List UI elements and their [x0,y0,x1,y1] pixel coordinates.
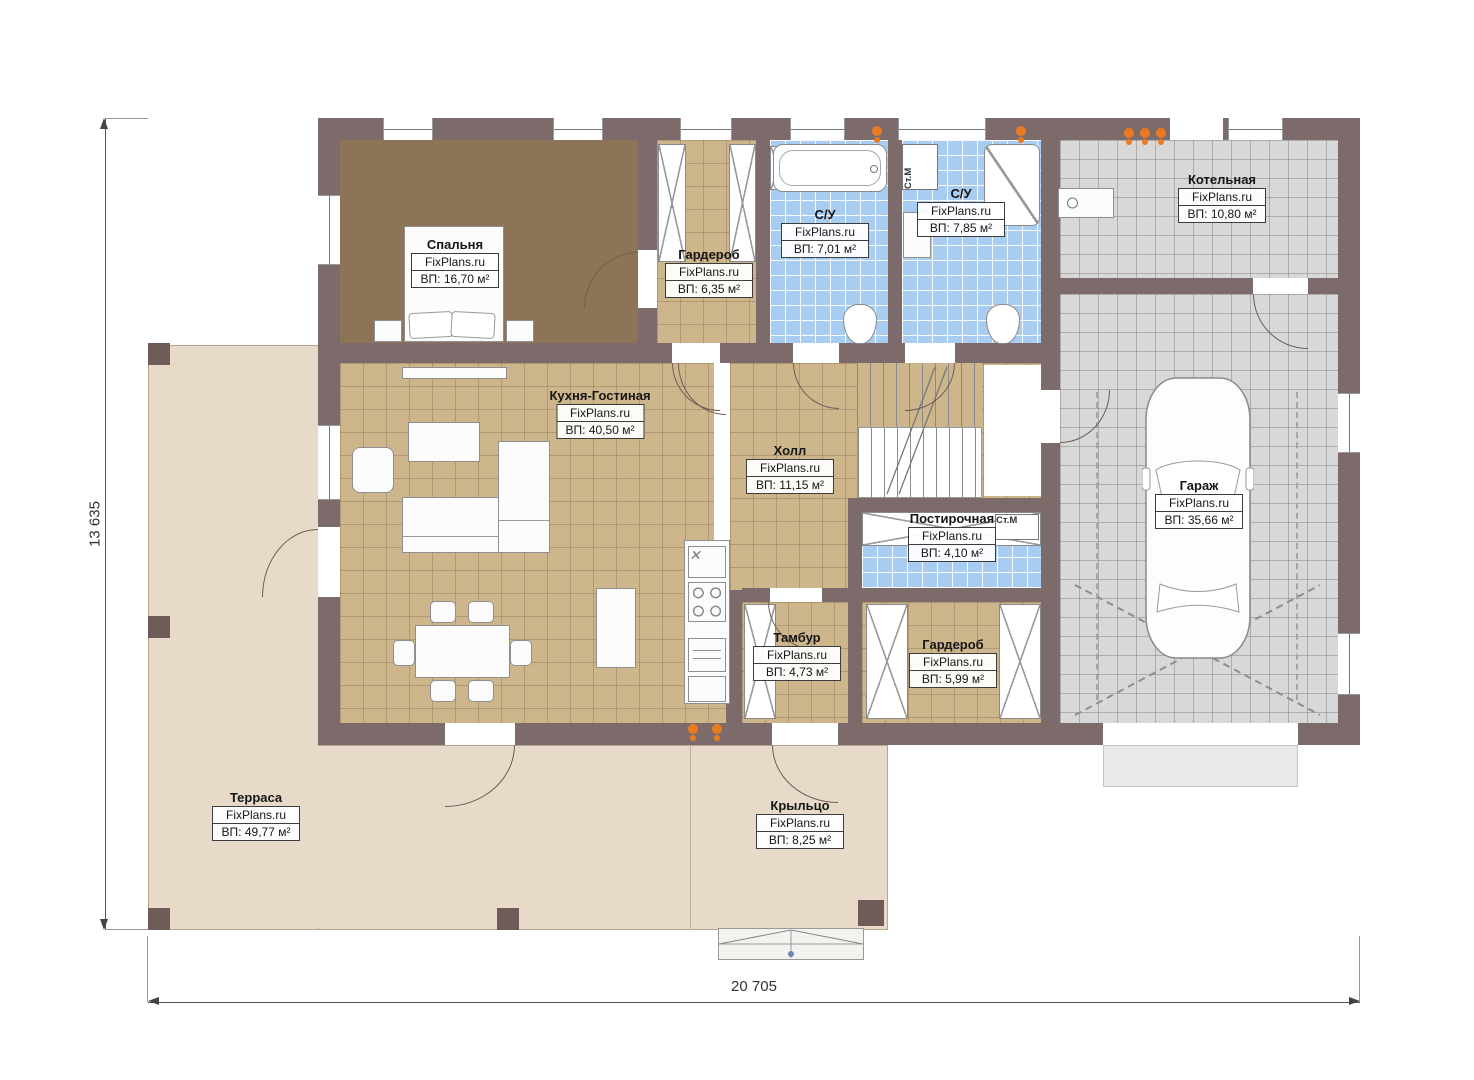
room-name: Кухня-Гостиная [549,388,650,403]
door-opening [905,343,955,363]
washing-machine: Ст.М [902,144,938,190]
radiator-icon [1140,128,1150,138]
pillow [450,311,495,339]
width-dimension: 20 705 [731,978,777,995]
wall [862,498,1041,512]
wall [638,140,657,343]
room-label-wardrobe-1: Гардероб FixPlans.ru ВП: 6,35 м² [665,247,753,298]
room-name: С/У [814,207,835,222]
room-area: ВП: 7,85 м² [917,219,1005,237]
room-name: Тамбур [773,630,820,645]
room-area: ВП: 35,66 м² [1155,511,1243,529]
hall-corridor [730,498,848,602]
cabinet [688,676,726,702]
dining-table [415,625,510,678]
room-label-garage: Гараж FixPlans.ru ВП: 35,66 м² [1155,478,1243,529]
chair [468,601,494,623]
room-label-bedroom: Спальня FixPlans.ru ВП: 16,70 м² [411,237,499,288]
room-area: ВП: 10,80 м² [1178,205,1266,223]
terrace-post [497,908,519,930]
room-label-wardrobe-2: Гардероб FixPlans.ru ВП: 5,99 м² [909,637,997,688]
closet [866,604,908,719]
room-area: ВП: 4,10 м² [908,544,996,562]
bathtub [773,144,887,192]
porch-post [858,900,884,926]
room-name: Терраса [230,790,282,805]
height-dimension: 13 635 [87,501,104,547]
window [1338,393,1360,453]
door-opening [672,343,720,363]
radiator-icon [1124,128,1134,138]
window [318,425,340,500]
pillow [408,311,453,339]
washing-machine: Ст.М [995,514,1039,540]
dimension-line-horizontal [148,1002,1360,1003]
window [790,118,845,140]
radiator-icon [1156,128,1166,138]
radiator-icon [1016,126,1026,136]
closet [658,144,686,262]
room-name: Гараж [1180,478,1219,493]
stair-landing [984,365,1041,496]
terrace-post [148,343,170,365]
closet [729,144,756,262]
door-opening [793,343,839,363]
room-label-hall: Холл FixPlans.ru ВП: 11,15 м² [746,443,834,494]
console-shelf [402,367,507,379]
room-label-bath-1: С/У FixPlans.ru ВП: 7,01 м² [781,207,869,258]
radiator-icon [712,724,722,734]
watermark: FixPlans.ru [556,404,644,422]
chair [393,640,415,666]
room-name: Котельная [1188,172,1256,187]
window [318,195,340,265]
room-area: ВП: 6,35 м² [665,280,753,298]
stove [688,582,726,622]
watermark: FixPlans.ru [917,202,1005,220]
wall [848,498,862,723]
window [553,118,603,140]
room-name: Крыльцо [770,798,829,813]
room-label-porch: Крыльцо FixPlans.ru ВП: 8,25 м² [756,798,844,849]
garage-door-opening [1103,723,1298,745]
extension-line [1359,936,1360,1002]
sofa-chaise [498,441,550,553]
porch-divider-line [690,746,691,929]
extension-line [105,929,148,930]
window [680,118,732,140]
room-area: ВП: 8,25 м² [756,831,844,849]
garage-apron [1103,745,1298,787]
watermark: FixPlans.ru [1178,188,1266,206]
arrow-up-icon [100,118,108,129]
tv-stand [408,422,480,462]
room-area: ВП: 49,77 м² [212,823,300,841]
closet [999,604,1041,719]
wall [888,140,902,343]
chair [430,601,456,623]
nightstand [374,320,402,342]
watermark: FixPlans.ru [781,223,869,241]
oven [688,638,726,672]
room-label-kitchen-living: Кухня-Гостиная FixPlans.ru ВП: 40,50 м² [549,388,650,439]
window [1338,633,1360,695]
window [383,118,433,140]
door-opening [445,723,515,745]
extension-line [147,936,148,1002]
radiator-icon [688,724,698,734]
room-area: ВП: 4,73 м² [753,663,841,681]
door-opening [638,250,657,308]
room-area: ВП: 40,50 м² [556,421,644,439]
watermark: FixPlans.ru [212,806,300,824]
room-label-laundry: Постирочная FixPlans.ru ВП: 4,10 м² [908,511,996,562]
extension-line [105,118,148,119]
room-label-terrace: Терраса FixPlans.ru ВП: 49,77 м² [212,790,300,841]
wall [756,140,770,343]
arrow-left-icon [148,997,159,1005]
watermark: FixPlans.ru [746,459,834,477]
door-opening [772,723,838,745]
chair [430,680,456,702]
kitchen-sink [688,546,726,578]
door-opening [1253,278,1308,294]
terrace-post [148,908,170,930]
watermark: FixPlans.ru [411,253,499,271]
clearance-line [1296,392,1298,700]
room-label-bath-2: С/У FixPlans.ru ВП: 7,85 м² [917,186,1005,237]
room-name: С/У [950,186,971,201]
floor-plan: 13 635 20 705 [0,0,1474,1080]
room-area: ВП: 7,01 м² [781,240,869,258]
room-area: ВП: 5,99 м² [909,670,997,688]
door-opening [1041,390,1060,443]
watermark: FixPlans.ru [753,646,841,664]
arrow-right-icon [1349,997,1360,1005]
watermark: FixPlans.ru [909,653,997,671]
arrow-down-icon [100,919,108,930]
room-name: Холл [774,443,807,458]
room-area: ВП: 11,15 м² [746,476,834,494]
deck-seam-patch [316,746,322,928]
room-name: Постирочная [910,511,994,526]
wall [862,588,1041,602]
radiator-icon [872,126,882,136]
clearance-line [1096,392,1098,700]
room-name: Гардероб [678,247,739,262]
terrace-post [148,616,170,638]
armchair [352,447,394,493]
door-opening [770,588,822,602]
window [1228,118,1283,140]
chair [510,640,532,666]
porch-steps [718,928,864,960]
watermark: FixPlans.ru [1155,494,1243,512]
watermark: FixPlans.ru [908,527,996,545]
watermark: FixPlans.ru [756,814,844,832]
nightstand [506,320,534,342]
terrace-deck [148,345,320,930]
room-name: Гардероб [922,637,983,652]
watermark: FixPlans.ru [665,263,753,281]
dimension-line-vertical [105,118,106,930]
room-label-boiler: Котельная FixPlans.ru ВП: 10,80 м² [1178,172,1266,223]
room-label-tambour: Тамбур FixPlans.ru ВП: 4,73 м² [753,630,841,681]
room-name: Спальня [427,237,483,252]
room-area: ВП: 16,70 м² [411,270,499,288]
door-opening [1170,118,1223,140]
chair [468,680,494,702]
window [898,118,986,140]
door-opening [318,527,340,597]
kitchen-island [596,588,636,668]
boiler-counter [1058,188,1114,218]
